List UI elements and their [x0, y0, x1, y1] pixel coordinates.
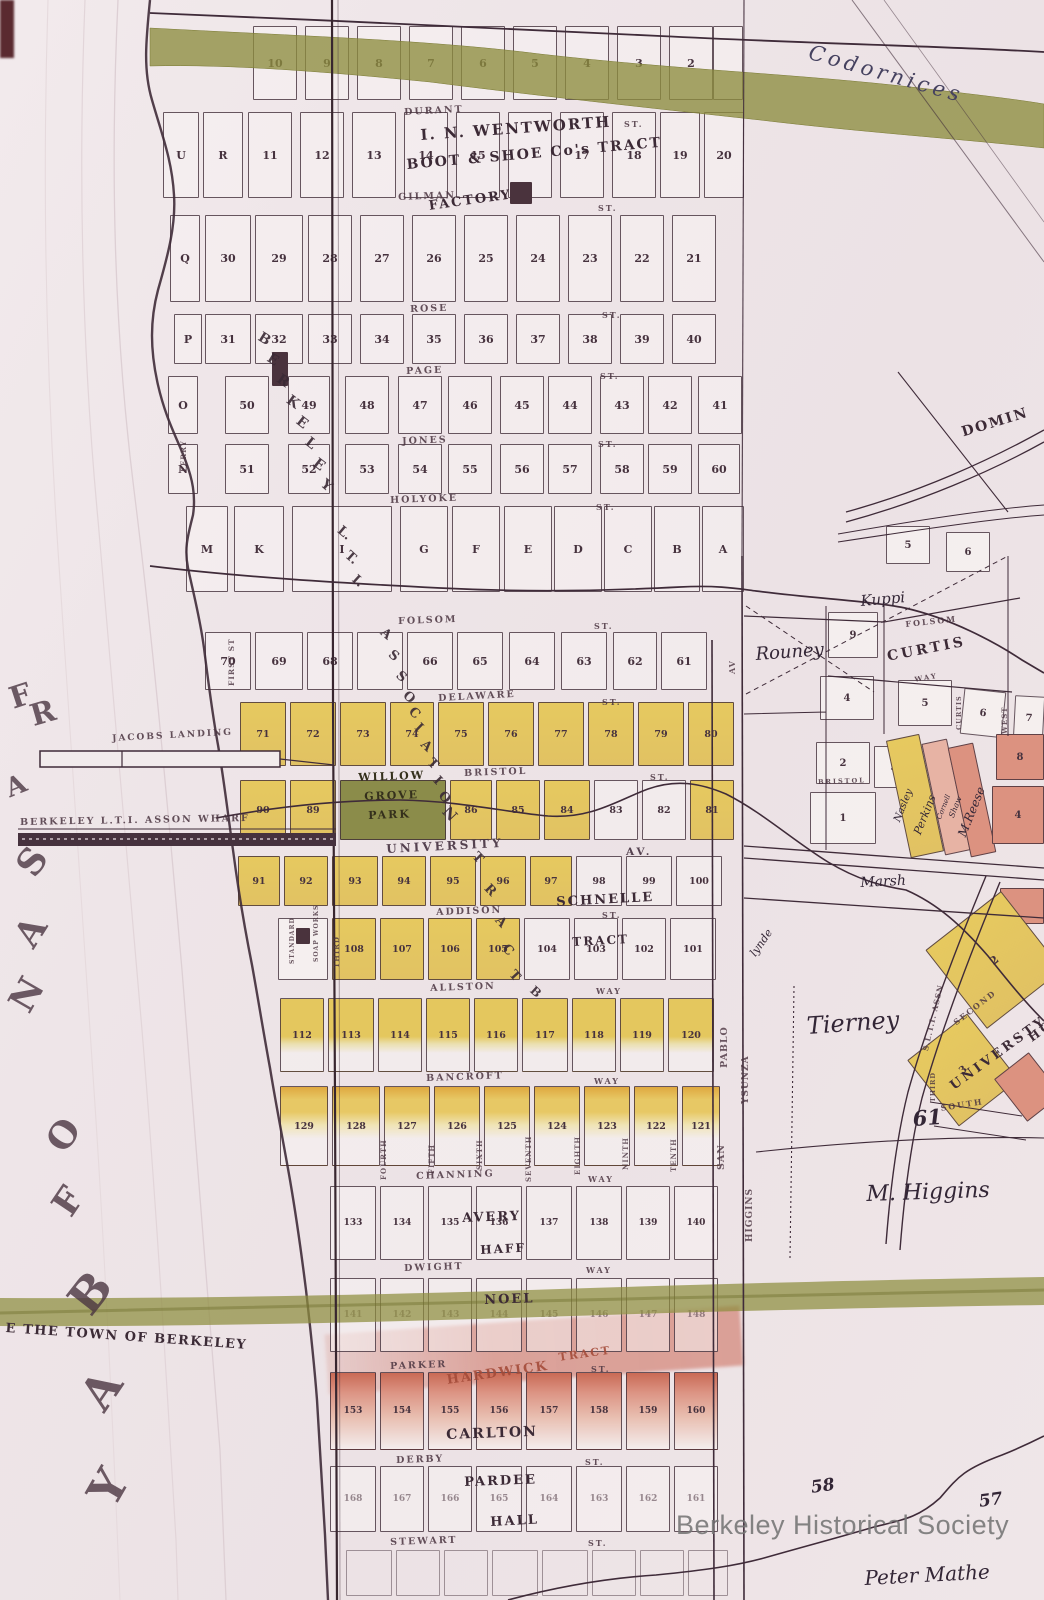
diagonal-tract-letter: R	[482, 882, 499, 899]
street-label: STEWART	[390, 1536, 458, 1548]
tract-label: HAFF	[480, 1242, 526, 1256]
parcel-number-label: 61	[912, 1106, 943, 1129]
street-label: AV.	[626, 847, 652, 858]
street-label: DWIGHT	[404, 1262, 464, 1274]
street-label: WAY	[588, 1175, 614, 1183]
vertical-street-label: SOAP WORKS	[314, 905, 320, 962]
vertical-street-label: FIFTH	[428, 1144, 435, 1174]
diagonal-tract-letter: K	[284, 393, 302, 411]
tract-label: CARLTON	[446, 1425, 538, 1442]
vertical-street-label: S.L.T.I. ASSN	[922, 984, 945, 1052]
tract-label: AVERY	[462, 1210, 521, 1225]
vertical-street-label: PABLO	[720, 1026, 730, 1068]
street-label: ST.	[588, 1539, 607, 1547]
street-label: ST.	[650, 773, 669, 781]
street-label: ST.	[594, 622, 613, 630]
street-label: BRISTOL	[464, 767, 528, 779]
vertical-street-label: WEST	[1001, 707, 1008, 734]
diagonal-tract-letter: B	[528, 984, 544, 1000]
street-label: FOLSOM	[905, 615, 957, 628]
tract-label: DOMIN	[960, 406, 1030, 440]
label-layer: DURANTST.GILMANST.ROSEST.PAGEST.JONESST.…	[0, 0, 1044, 1600]
bay-letter: N	[3, 972, 51, 1018]
bay-letter: A	[8, 910, 53, 953]
diagonal-tract-letter: L	[302, 435, 318, 452]
tract-label: HALL	[490, 1513, 539, 1529]
diagonal-tract-letter: E	[310, 456, 327, 474]
parcel-number-label: 57	[978, 1491, 1004, 1511]
tract-label: TRACT	[558, 1345, 612, 1363]
diagonal-tract-letter: T	[470, 850, 486, 866]
vertical-street-label: NINTH	[622, 1137, 629, 1170]
parcel-number-label: 58	[810, 1477, 836, 1497]
owner-name-label: M.Reese	[956, 785, 987, 838]
diagonal-tract-letter: L.	[335, 524, 354, 543]
vertical-street-label: THIRD	[333, 936, 340, 968]
bay-letter: O	[40, 1112, 87, 1158]
owner-name-label: M. Higgins	[866, 1180, 990, 1206]
vertical-street-label: EIGHTH	[574, 1136, 581, 1175]
street-label: SECOND	[952, 988, 997, 1026]
park-label: WILLOW	[358, 770, 425, 783]
diagonal-tract-letter: S	[386, 648, 402, 664]
diagonal-tract-letter: E	[293, 414, 310, 432]
bay-letter: S	[10, 841, 54, 883]
street-label: ADDISON	[436, 906, 502, 918]
street-label: ROSE	[410, 304, 449, 315]
street-label: WAY	[914, 672, 938, 683]
street-label: DERBY	[396, 1454, 444, 1465]
historic-map-photo: 1098765432UR111213141517181920Q302928272…	[0, 0, 1044, 1600]
diagonal-tract-letter: A	[418, 738, 434, 754]
tract-label: I. N. WENTWORTH	[420, 115, 612, 143]
owner-name-label: Nasley	[893, 788, 915, 824]
street-label: JONES	[402, 435, 448, 446]
vertical-street-label: FERRY	[180, 440, 187, 472]
tract-label: CURTIS	[886, 635, 967, 664]
bay-letter: R	[27, 696, 59, 732]
street-label: DURANT	[404, 105, 464, 118]
owner-name-label: Tierney	[806, 1008, 900, 1038]
street-label: ALLSTON	[430, 982, 496, 994]
watermark: Berkeley Historical Society	[676, 1510, 1009, 1541]
street-label: ST.	[598, 204, 617, 212]
diagonal-tract-letter: A	[492, 914, 508, 930]
tract-label: SCHNELLE	[556, 891, 655, 909]
street-label: WAY	[596, 987, 622, 995]
owner-name-label: Marsh	[860, 874, 906, 890]
street-label: PARKER	[390, 1360, 447, 1371]
street-label: ST.	[624, 120, 643, 128]
diagonal-tract-letter: C	[406, 705, 422, 722]
diagonal-tract-letter: I	[412, 721, 425, 735]
diagonal-tract-letter: I	[431, 774, 445, 787]
vertical-street-label: CURTIS	[956, 695, 963, 730]
owner-name-label: Rouney	[755, 641, 824, 664]
tract-label: NOEL	[484, 1292, 535, 1307]
diagonal-tract-letter: T	[506, 968, 522, 984]
park-label: PARK	[368, 809, 411, 821]
diagonal-tract-letter: N	[439, 804, 459, 824]
owner-name-label: Kuppi	[860, 590, 906, 609]
vertical-street-label: AV	[728, 660, 736, 674]
owner-name-label: lynde	[748, 927, 774, 958]
street-label: BERKELEY L.T.I. ASSON WHARF	[20, 814, 250, 828]
vertical-street-label: YSUNZA	[742, 1055, 751, 1104]
street-label: DELAWARE	[438, 690, 516, 704]
street-label: BRISTOL	[818, 777, 866, 785]
vertical-street-label: SEVENTH	[525, 1136, 532, 1182]
street-label: ST.	[591, 1365, 610, 1373]
diagonal-tract-letter: R	[274, 372, 291, 390]
bay-letter: F	[46, 1181, 90, 1222]
bay-letter: A	[2, 770, 30, 802]
diagonal-tract-letter: Y	[318, 477, 335, 494]
tract-label: HARDWICK	[446, 1360, 550, 1387]
diagonal-tract-letter: A	[378, 626, 394, 642]
tract-label: UNIVERSTY	[948, 1014, 1044, 1092]
street-label: PAGE	[406, 366, 443, 377]
street-label: ST.	[598, 440, 617, 448]
street-label: BANCROFT	[426, 1071, 504, 1083]
bay-letter: Y	[80, 1462, 136, 1513]
street-label: ST.	[585, 1458, 604, 1466]
vertical-street-label: FIRST ST	[228, 638, 236, 686]
vertical-street-label: FOURTH	[380, 1139, 387, 1180]
diagonal-tract-letter: E	[265, 351, 281, 369]
diagonal-tract-letter: C	[499, 942, 516, 958]
street-label: JACOBS LANDING	[112, 729, 233, 744]
owner-name-label: Perkins	[912, 793, 938, 836]
vertical-street-label: STANDARD	[290, 917, 296, 964]
street-label: ST.	[602, 698, 621, 706]
street-label: ST.	[602, 311, 621, 319]
boundary-label: E THE TOWN OF BERKELEY	[5, 1322, 247, 1352]
diagonal-tract-letter: S	[393, 669, 409, 685]
diagonal-tract-letter: B	[256, 330, 273, 348]
street-label: UNIVERSITY	[386, 837, 504, 855]
street-label: ST.	[602, 911, 621, 919]
street-label: WAY	[586, 1266, 612, 1274]
diagonal-tract-letter: I.	[349, 573, 366, 590]
street-label: HOLYOKE	[390, 494, 458, 506]
street-label: FOLSOM	[398, 615, 458, 627]
creek-label: Codornices	[806, 42, 966, 106]
bay-letter: A	[72, 1362, 130, 1417]
vertical-street-label: THIRD	[930, 1072, 937, 1102]
diagonal-tract-letter: T.	[342, 549, 360, 567]
vertical-street-label: TENTH	[670, 1138, 677, 1172]
vertical-street-label: HIGGINS	[746, 1188, 755, 1242]
street-label: WAY	[594, 1077, 620, 1085]
tract-label: TRACT	[572, 933, 629, 948]
street-label: ST.	[600, 372, 619, 380]
tract-label: PARDEE	[464, 1473, 537, 1489]
park-label: GROVE	[364, 789, 419, 802]
street-label: ST.	[596, 503, 615, 511]
vertical-street-label: SIXTH	[476, 1139, 483, 1170]
bay-letter: B	[60, 1263, 120, 1322]
diagonal-tract-letter: T	[425, 756, 441, 772]
owner-name-label: Peter Mathe	[864, 1561, 990, 1588]
street-label: SOUTH	[940, 1097, 984, 1112]
vertical-street-label: SAN	[717, 1144, 727, 1170]
